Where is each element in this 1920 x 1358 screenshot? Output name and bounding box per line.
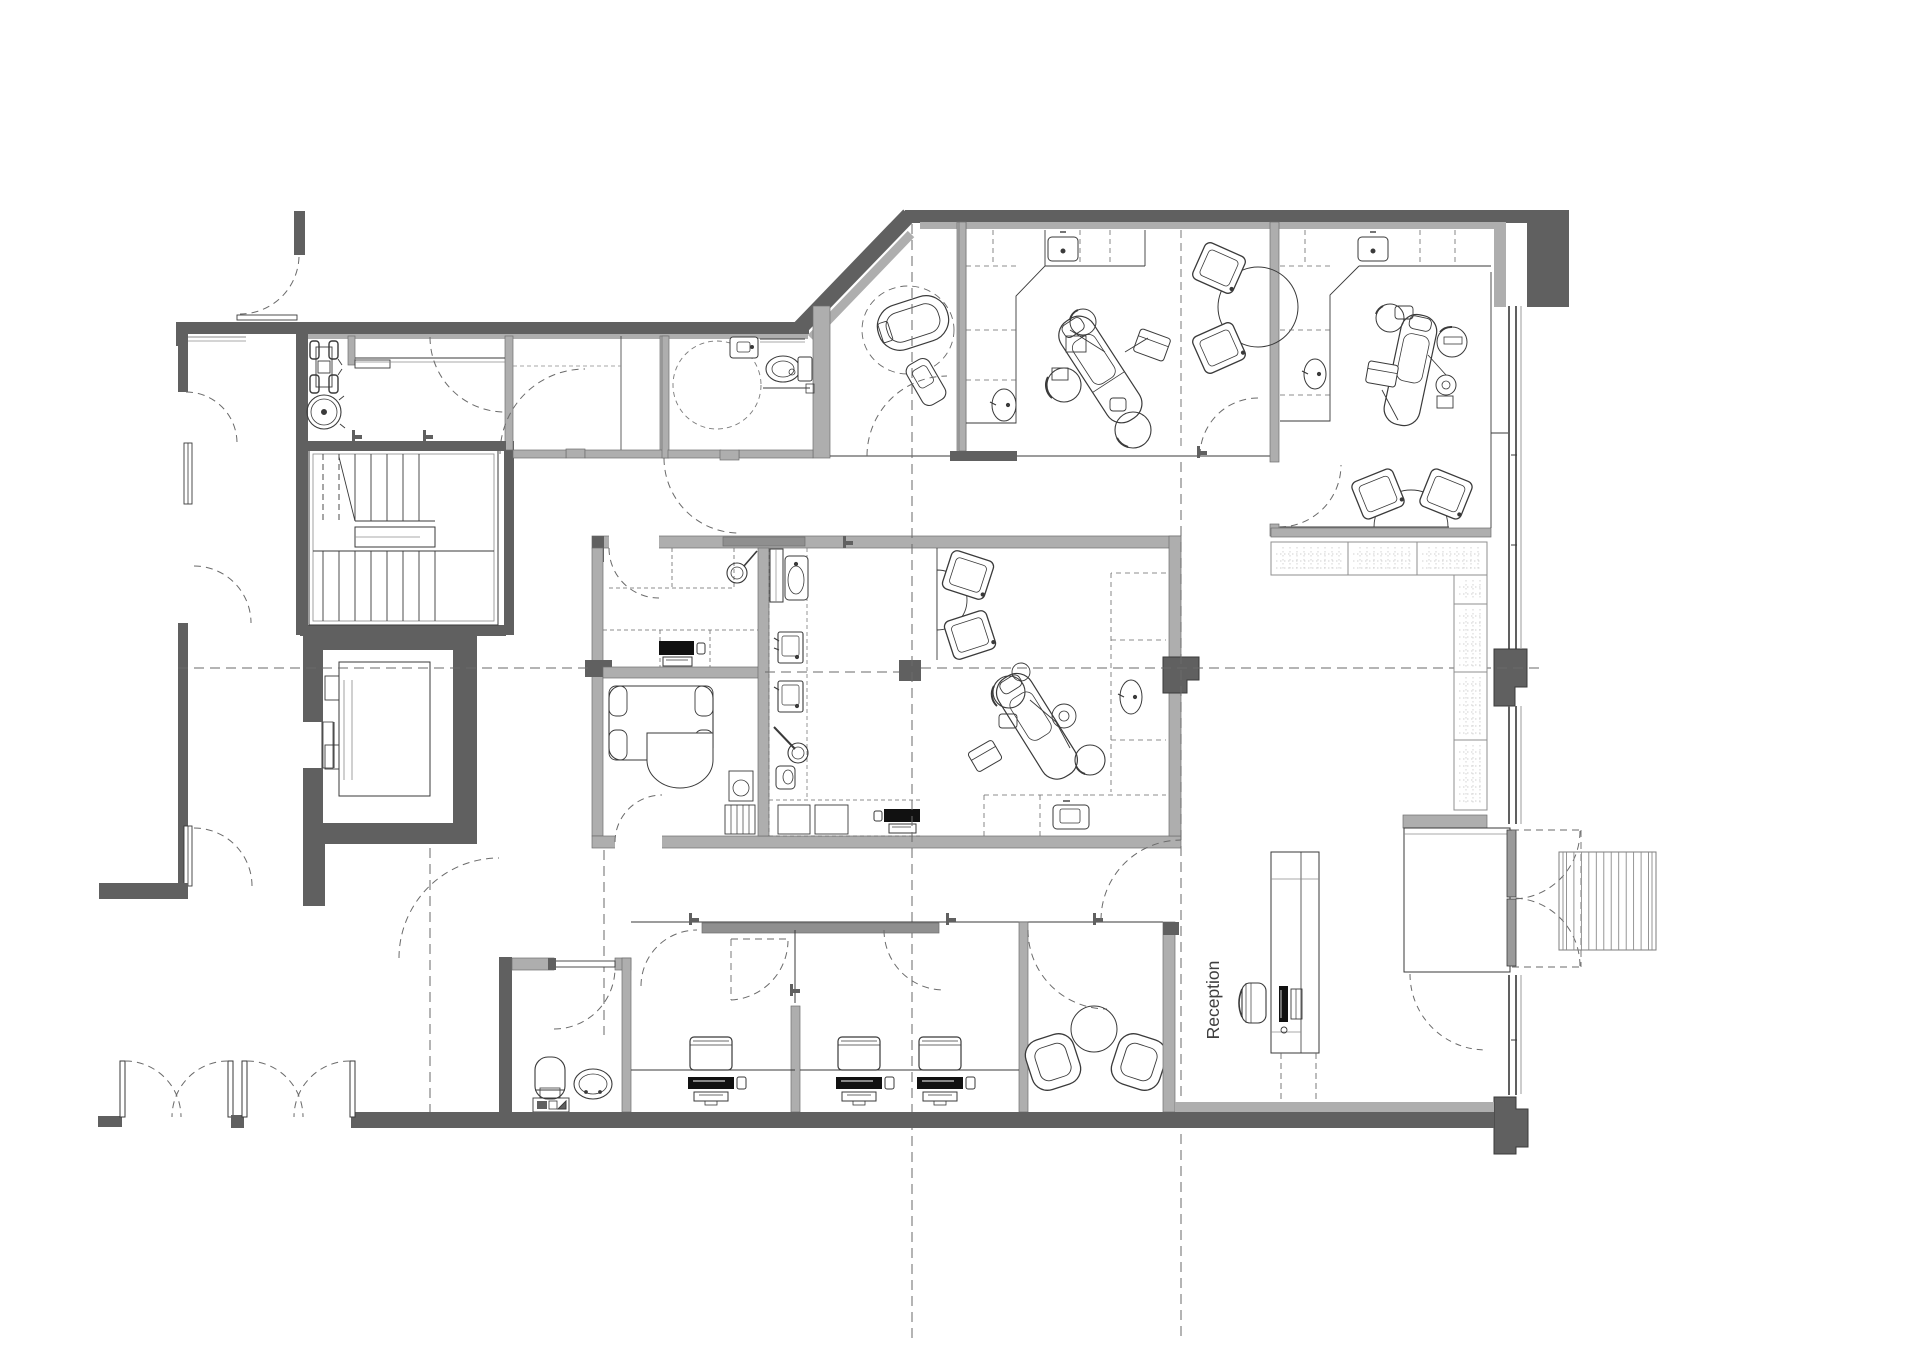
svg-text:Reception: Reception [1203, 961, 1223, 1040]
